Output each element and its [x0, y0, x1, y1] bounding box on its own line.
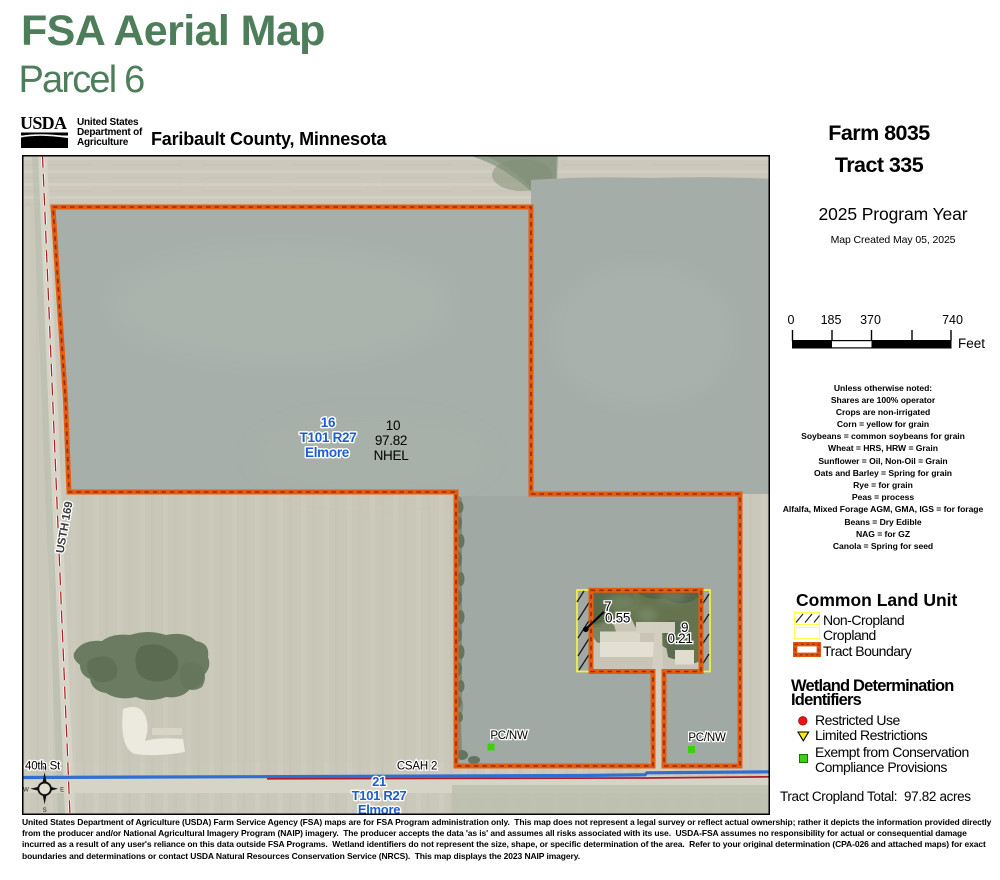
svg-text:USDA: USDA [21, 113, 67, 133]
svg-text:10: 10 [386, 418, 400, 433]
svg-text:0.21: 0.21 [668, 631, 693, 646]
svg-text:16: 16 [321, 415, 336, 430]
svg-text:PC/NW: PC/NW [688, 732, 726, 744]
svg-text:370: 370 [860, 313, 881, 327]
svg-text:21: 21 [372, 774, 386, 789]
svg-text:E: E [60, 787, 64, 793]
svg-text:0: 0 [788, 313, 795, 327]
svg-text:CSAH 2: CSAH 2 [397, 761, 437, 773]
svg-text:740: 740 [942, 313, 963, 327]
svg-text:0.55: 0.55 [605, 611, 630, 626]
svg-text:Elmore: Elmore [305, 445, 350, 460]
svg-text:NHEL: NHEL [374, 448, 410, 463]
svg-text:N: N [42, 766, 46, 772]
svg-text:T101 R27: T101 R27 [300, 430, 357, 445]
svg-text:185: 185 [821, 313, 842, 327]
svg-text:97.82: 97.82 [375, 433, 407, 448]
svg-text:T101 R27: T101 R27 [352, 788, 407, 803]
svg-text:S: S [43, 808, 47, 814]
svg-text:Feet: Feet [958, 336, 985, 351]
svg-text:PC/NW: PC/NW [490, 730, 528, 742]
svg-text:Elmore: Elmore [358, 802, 400, 815]
svg-text:W: W [23, 787, 29, 793]
